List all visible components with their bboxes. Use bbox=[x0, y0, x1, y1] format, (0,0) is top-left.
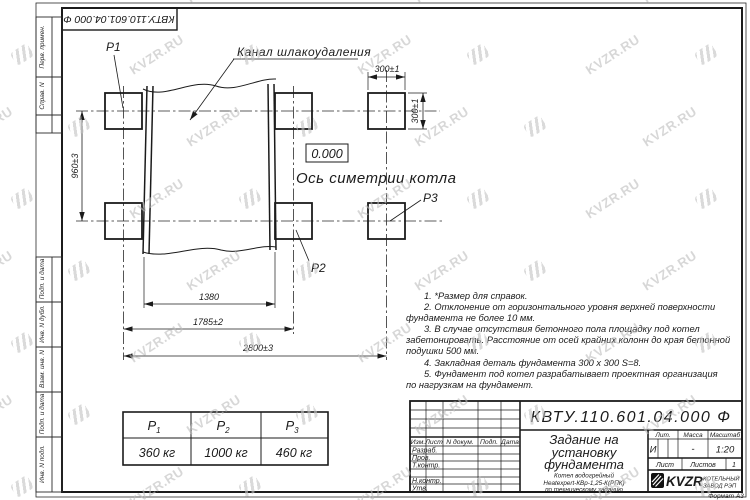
product-name-line3: по техническому заданию bbox=[545, 486, 623, 494]
dim-1785-value: 1785±2 bbox=[193, 317, 223, 327]
margin-label-perv-primen: Перв. примен. bbox=[39, 25, 46, 68]
dim-300-h-value: 300±1 bbox=[375, 64, 400, 74]
note-line: по нагрузкам на фундамент. bbox=[406, 380, 742, 391]
margin-label-podp-data-2: Подп. и дата bbox=[38, 393, 46, 434]
row-label-tkontr: Т.контр. bbox=[412, 463, 440, 470]
dim-1785: 1785±2 bbox=[124, 317, 294, 332]
dim-960: 960±3 bbox=[70, 111, 85, 221]
dim-300-v: 300±1 bbox=[408, 93, 427, 129]
drawing-sheet: КВТУ.110.601.04.000 Ф Перв. примен. Спра… bbox=[0, 0, 750, 500]
load-table: P1 P2 P3 360 кг 1000 кг 460 кг bbox=[123, 412, 328, 465]
top-stamp: КВТУ.110.601.04.000 Ф bbox=[62, 8, 177, 30]
lit-header: Лит. bbox=[654, 432, 670, 439]
dim-300-v-value: 300±1 bbox=[410, 99, 420, 124]
label-p2: P2 bbox=[311, 261, 326, 275]
elevation-and-axis: 0.000 Ось симетрии котла bbox=[296, 144, 456, 187]
top-stamp-doc-number: КВТУ.110.601.04.000 Ф bbox=[63, 13, 174, 25]
dim-2800: 2800±3 bbox=[124, 343, 387, 359]
mass-header: Масса bbox=[683, 432, 703, 439]
col-header-podp: Подп. bbox=[480, 438, 498, 446]
product-name-line1: Котел водогрейный bbox=[554, 472, 614, 480]
col-header-izm: Изм. bbox=[411, 439, 426, 446]
sheets-label: Листов bbox=[689, 462, 716, 469]
load-table-value-p2: 1000 кг bbox=[204, 446, 247, 460]
margin-labels: Перв. примен. Справ. N Подп. и дата Инв.… bbox=[38, 25, 46, 483]
sheets-value: 1 bbox=[732, 462, 736, 469]
lit-value: И bbox=[650, 445, 657, 456]
note-line: подушки 500 мм. bbox=[406, 346, 742, 357]
col-header-list: Лист bbox=[424, 439, 443, 446]
note-line: 2. Отклонение от горизонтального уровня … bbox=[406, 302, 742, 313]
note-line: 3. В случае отсутствия бетонного пола пл… bbox=[406, 324, 742, 335]
margin-label-vzam-inv: Взам. инв. N bbox=[39, 350, 46, 388]
axis-of-symmetry-label: Ось симетрии котла bbox=[296, 170, 456, 187]
scale-value: 1:20 bbox=[716, 445, 735, 456]
sheet-label: Лист bbox=[655, 462, 674, 469]
note-line: забетонировать. Расстояние от осей крайн… bbox=[406, 335, 742, 346]
drawing-canvas: КВТУ.110.601.04.000 Ф Перв. примен. Спра… bbox=[0, 0, 750, 500]
dim-2800-value: 2800±3 bbox=[242, 343, 273, 353]
load-table-header-p1: P1 bbox=[147, 418, 160, 435]
load-table-header-p2: P2 bbox=[216, 418, 230, 435]
row-label-utv: Утв. bbox=[411, 486, 428, 493]
row-label-nkontr: Н.контр. bbox=[412, 478, 442, 485]
note-line: 1. *Размер для справок. bbox=[406, 291, 742, 302]
company-logo: KVZR КОТЕЛЬНЫЙ ЗАВОД РЭП bbox=[651, 473, 740, 490]
company-name-line1: КОТЕЛЬНЫЙ bbox=[703, 475, 740, 483]
title-block-title-line3: фундамента bbox=[544, 457, 624, 472]
elevation-mark: 0.000 bbox=[311, 147, 342, 161]
label-p3: P3 bbox=[423, 191, 438, 205]
margin-label-inv-podl: Инв. N подл. bbox=[38, 445, 46, 483]
note-line: 4. Закладная деталь фундамента 300 x 300… bbox=[406, 358, 742, 369]
margin-label-sprav-n: Справ. N bbox=[39, 82, 46, 110]
mass-value: - bbox=[691, 444, 694, 455]
label-slag-channel: Канал шлакоудаления bbox=[237, 45, 371, 59]
load-table-value-p3: 460 кг bbox=[276, 446, 312, 460]
logo-text: KVZR bbox=[666, 474, 703, 489]
col-header-data: Дата bbox=[500, 439, 519, 446]
margin-label-inv-dubl: Инв. N дубл. bbox=[38, 305, 46, 343]
title-block-doc-number: КВТУ.110.601.04.000 Ф bbox=[531, 409, 732, 426]
format-label: Формат А3 bbox=[708, 493, 744, 500]
technical-notes: 1. *Размер для справок. 2. Отклонение от… bbox=[406, 291, 742, 391]
row-label-prov: Пров. bbox=[412, 455, 431, 462]
col-header-dokum: N докум. bbox=[446, 438, 474, 446]
dim-1380-value: 1380 bbox=[199, 292, 219, 302]
note-line: фундамента не более 10 мм. bbox=[406, 313, 742, 324]
load-table-header-p3: P3 bbox=[285, 418, 299, 435]
row-label-razrab: Разраб. bbox=[412, 447, 437, 455]
boiler-outline bbox=[143, 79, 276, 254]
company-name-line2: ЗАВОД РЭП bbox=[703, 484, 737, 490]
dim-960-value: 960±3 bbox=[70, 154, 80, 179]
dim-1380: 1380 bbox=[144, 252, 275, 308]
scale-header: Масштаб bbox=[710, 431, 741, 439]
load-table-value-p1: 360 кг bbox=[139, 446, 175, 460]
label-p1: P1 bbox=[106, 40, 121, 54]
note-line: 5. Фундамент под котел разрабатывает про… bbox=[406, 369, 742, 380]
margin-label-podp-data-1: Подп. и дата bbox=[38, 258, 46, 299]
centerlines bbox=[76, 70, 443, 360]
